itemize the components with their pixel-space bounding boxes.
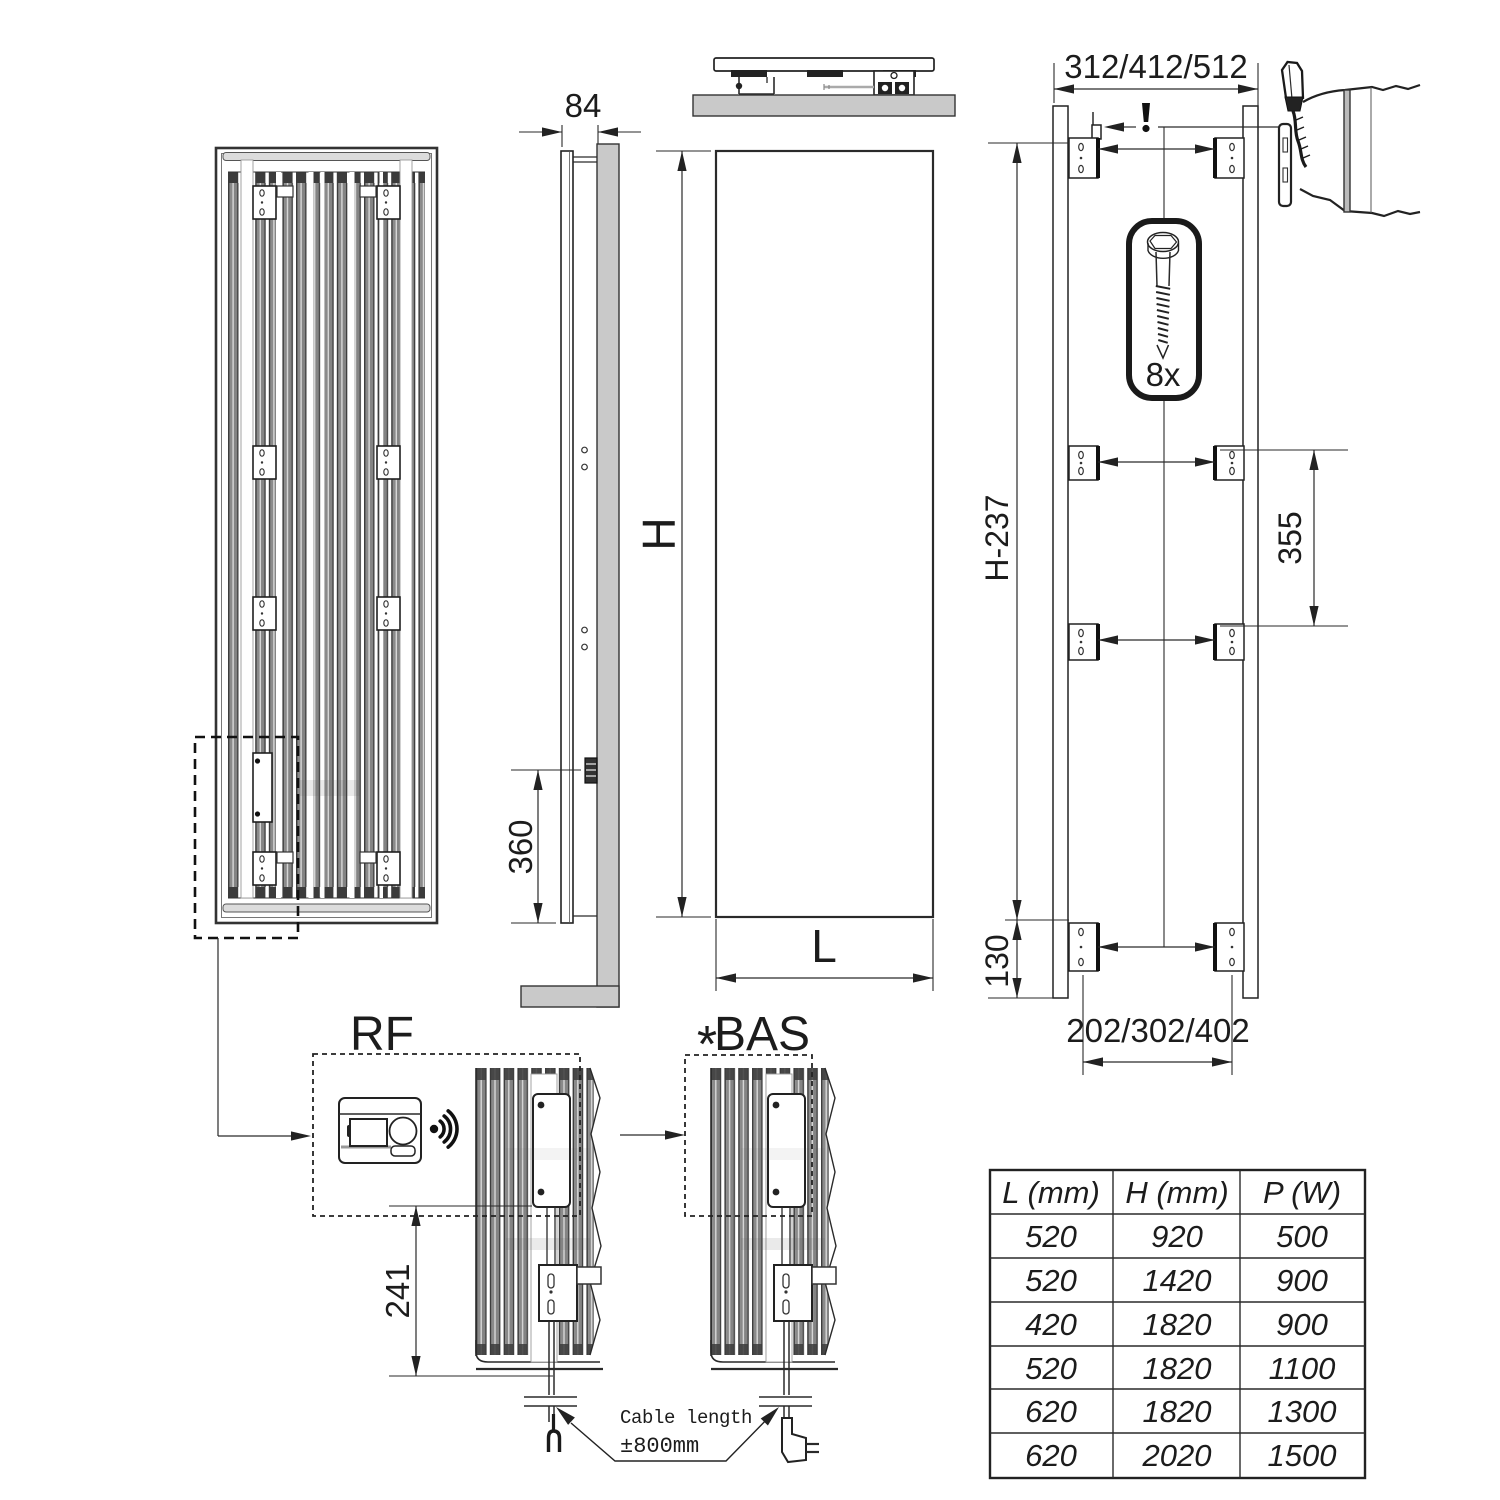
svg-text:1300: 1300	[1268, 1394, 1337, 1429]
svg-text:620: 620	[1025, 1438, 1077, 1473]
svg-text:2020: 2020	[1142, 1438, 1212, 1473]
svg-text:RF: RF	[350, 1008, 414, 1061]
svg-text:900: 900	[1276, 1307, 1328, 1342]
svg-text:1500: 1500	[1268, 1438, 1337, 1473]
svg-text:1820: 1820	[1143, 1394, 1212, 1429]
svg-text:H (mm): H (mm)	[1125, 1175, 1228, 1210]
svg-text:520: 520	[1025, 1351, 1077, 1386]
svg-text:202/302/402: 202/302/402	[1066, 1012, 1250, 1049]
svg-text:900: 900	[1276, 1263, 1328, 1298]
svg-text:L (mm): L (mm)	[1002, 1175, 1100, 1210]
svg-text:BAS: BAS	[714, 1008, 810, 1061]
svg-text:±800mm: ±800mm	[620, 1434, 699, 1459]
svg-text:1100: 1100	[1269, 1351, 1336, 1386]
svg-text:360: 360	[502, 819, 539, 874]
svg-text:312/412/512: 312/412/512	[1064, 48, 1248, 85]
svg-text:8x: 8x	[1146, 356, 1181, 393]
svg-text:84: 84	[565, 87, 602, 124]
svg-text:620: 620	[1025, 1394, 1077, 1429]
svg-text:P (W): P (W)	[1263, 1175, 1341, 1210]
svg-text:H: H	[633, 517, 685, 550]
svg-text:L: L	[811, 920, 837, 972]
svg-text:920: 920	[1151, 1219, 1203, 1254]
svg-text:*: *	[697, 1016, 717, 1074]
svg-text:355: 355	[1272, 511, 1308, 564]
svg-text:1820: 1820	[1143, 1307, 1212, 1342]
svg-text:Cable length: Cable length	[620, 1407, 752, 1429]
svg-text:130: 130	[979, 934, 1015, 987]
svg-text:520: 520	[1025, 1263, 1077, 1298]
svg-text:241: 241	[379, 1263, 416, 1318]
svg-text:520: 520	[1025, 1219, 1077, 1254]
svg-text:1420: 1420	[1143, 1263, 1212, 1298]
svg-text:1820: 1820	[1143, 1351, 1212, 1386]
svg-text:420: 420	[1025, 1307, 1077, 1342]
svg-text:500: 500	[1276, 1219, 1328, 1254]
svg-text:H-237: H-237	[979, 494, 1015, 581]
